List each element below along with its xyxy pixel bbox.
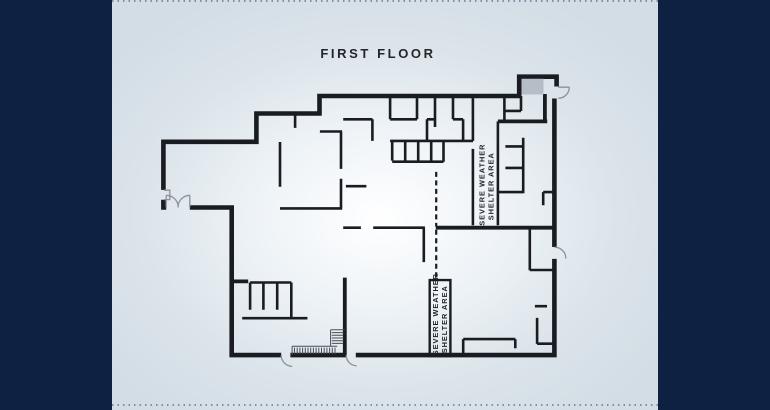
screenshot-root: { "title": "FIRST FLOOR", "labels": { "s… bbox=[0, 0, 770, 410]
entry-mat bbox=[522, 79, 544, 95]
floorplan-svg bbox=[0, 0, 770, 410]
thick-interior-wall bbox=[232, 94, 556, 355]
shelter-label-line2: SHELTER AREA bbox=[487, 147, 496, 226]
severe-weather-shelter-label-1: SEVERE WEATHER SHELTER AREA bbox=[477, 147, 496, 226]
shelter-label-line1: SEVERE WEATHER bbox=[477, 147, 486, 226]
shelter-label-line2: SHELTER AREA bbox=[440, 283, 449, 355]
shelter-label-line1: SEVERE WEATHER bbox=[431, 283, 440, 355]
severe-weather-shelter-label-2: SEVERE WEATHER SHELTER AREA bbox=[431, 283, 450, 355]
stair-treads bbox=[292, 330, 345, 355]
page-title: FIRST FLOOR bbox=[288, 46, 468, 61]
